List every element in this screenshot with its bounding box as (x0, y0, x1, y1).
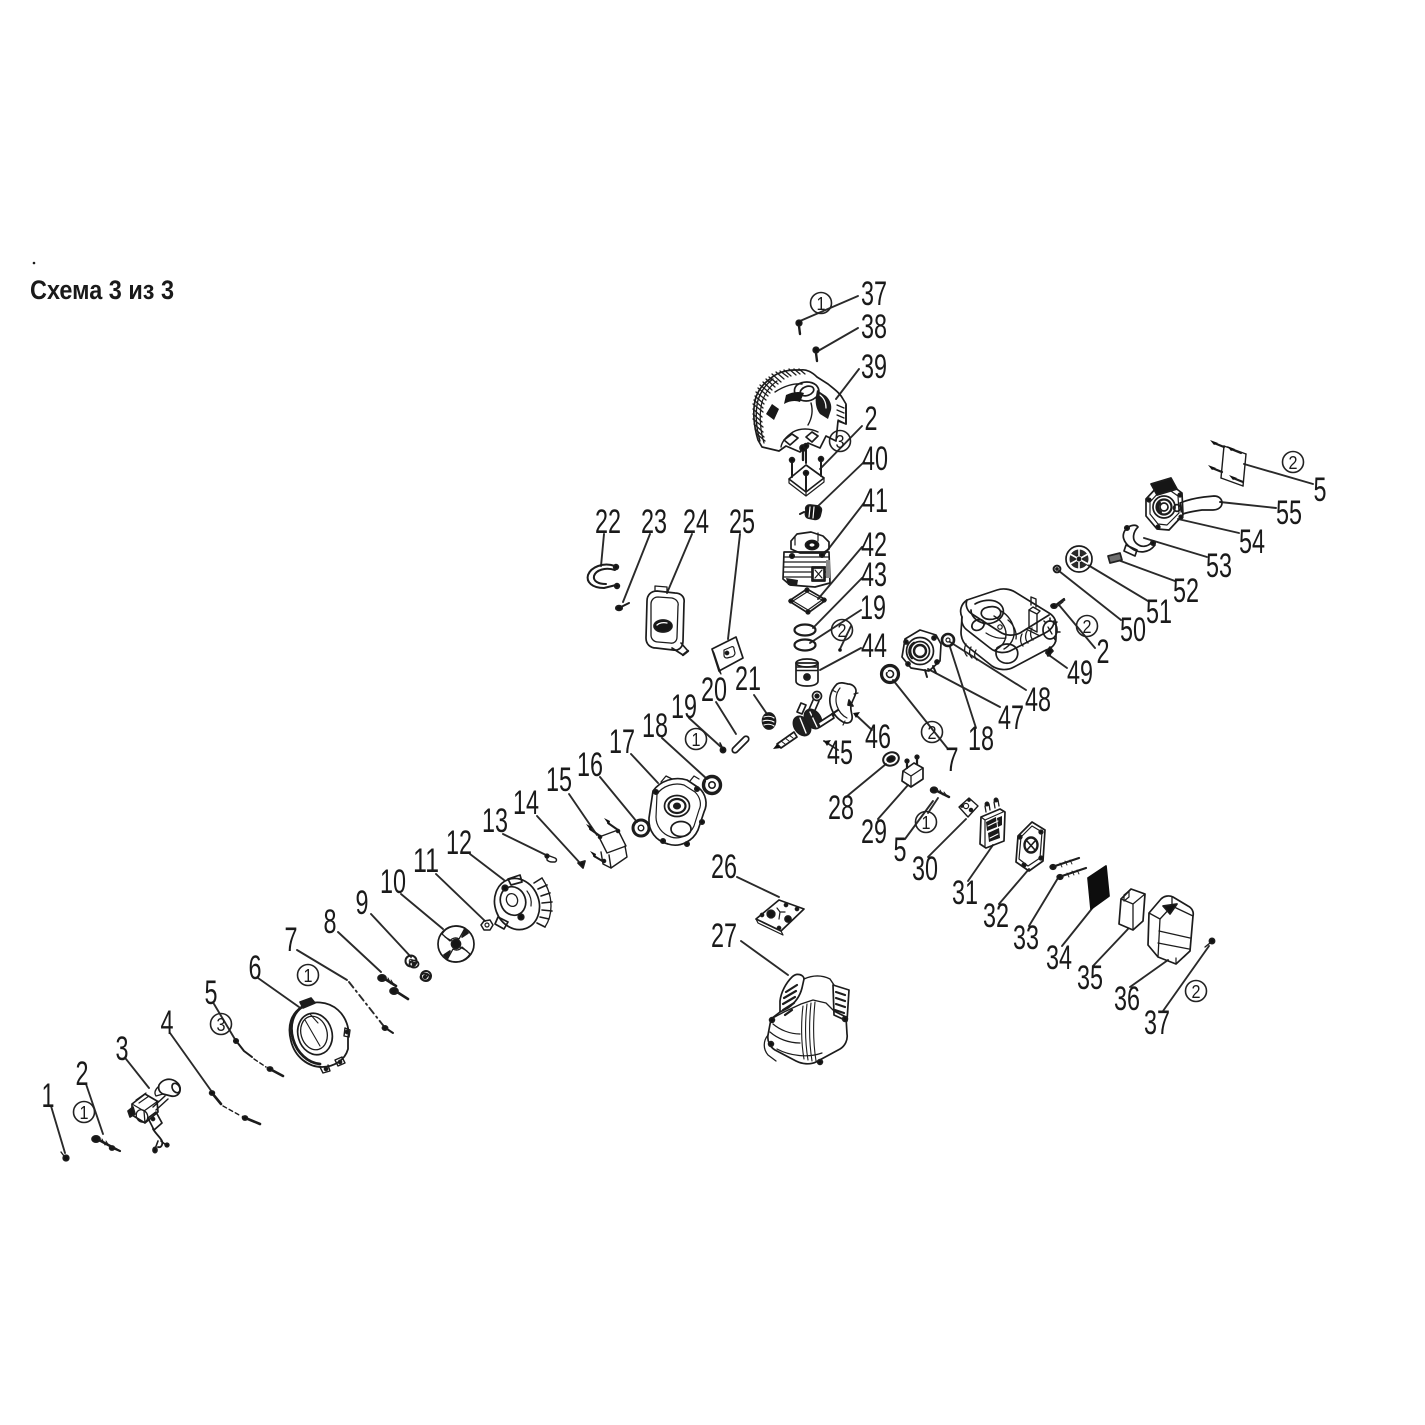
svg-text:2: 2 (1083, 617, 1092, 637)
svg-text:40: 40 (862, 440, 888, 478)
svg-text:50: 50 (1120, 611, 1146, 649)
svg-text:28: 28 (828, 789, 854, 827)
svg-text:9: 9 (356, 884, 369, 922)
svg-text:23: 23 (641, 503, 667, 541)
svg-text:7: 7 (285, 921, 298, 959)
svg-text:1: 1 (304, 966, 313, 986)
svg-text:17: 17 (609, 723, 635, 761)
svg-text:26: 26 (711, 848, 737, 886)
svg-text:47: 47 (998, 699, 1024, 737)
svg-text:4: 4 (161, 1004, 174, 1042)
svg-text:12: 12 (446, 824, 472, 862)
svg-text:51: 51 (1146, 593, 1172, 631)
svg-text:36: 36 (1114, 980, 1140, 1018)
svg-text:32: 32 (983, 897, 1009, 935)
svg-text:1: 1 (80, 1103, 89, 1123)
svg-text:2: 2 (1192, 982, 1201, 1002)
svg-text:19: 19 (671, 688, 697, 726)
svg-text:41: 41 (862, 482, 888, 520)
svg-text:21: 21 (735, 660, 761, 698)
svg-text:1: 1 (42, 1077, 55, 1115)
svg-text:49: 49 (1067, 654, 1093, 692)
svg-text:18: 18 (968, 720, 994, 758)
svg-text:2: 2 (865, 400, 878, 438)
svg-text:1: 1 (692, 730, 701, 750)
svg-text:39: 39 (861, 348, 887, 386)
svg-text:48: 48 (1025, 681, 1051, 719)
svg-text:29: 29 (861, 813, 887, 851)
svg-text:33: 33 (1013, 919, 1039, 957)
svg-text:20: 20 (701, 671, 727, 709)
svg-text:3: 3 (217, 1015, 226, 1035)
svg-text:13: 13 (482, 802, 508, 840)
svg-text:10: 10 (380, 863, 406, 901)
svg-text:14: 14 (513, 784, 539, 822)
svg-text:54: 54 (1239, 523, 1265, 561)
svg-text:44: 44 (861, 627, 887, 665)
svg-text:35: 35 (1077, 959, 1103, 997)
svg-text:1: 1 (922, 813, 931, 833)
svg-text:2: 2 (1289, 453, 1298, 473)
svg-text:1: 1 (817, 294, 826, 314)
svg-text:15: 15 (546, 761, 572, 799)
svg-text:2: 2 (76, 1055, 89, 1093)
svg-text:19: 19 (860, 589, 886, 627)
svg-text:3: 3 (116, 1030, 129, 1068)
svg-text:2: 2 (1097, 633, 1110, 671)
svg-text:7: 7 (946, 741, 959, 779)
svg-text:2: 2 (838, 621, 847, 641)
svg-text:25: 25 (729, 503, 755, 541)
svg-text:53: 53 (1206, 547, 1232, 585)
svg-text:27: 27 (711, 917, 737, 955)
svg-text:18: 18 (642, 707, 668, 745)
svg-text:30: 30 (912, 850, 938, 888)
svg-text:Схема 3 из 3: Схема 3 из 3 (30, 275, 174, 305)
svg-text:11: 11 (413, 842, 439, 880)
svg-text:22: 22 (595, 503, 621, 541)
svg-text:52: 52 (1173, 572, 1199, 610)
svg-text:5: 5 (894, 831, 907, 869)
svg-text:46: 46 (865, 718, 891, 756)
svg-text:2: 2 (928, 723, 937, 743)
svg-text:16: 16 (577, 746, 603, 784)
svg-text:8: 8 (324, 903, 337, 941)
svg-text:37: 37 (1144, 1004, 1170, 1042)
svg-text:31: 31 (952, 874, 978, 912)
svg-text:5: 5 (1314, 471, 1327, 509)
svg-text:45: 45 (827, 734, 853, 772)
svg-text:38: 38 (861, 308, 887, 346)
svg-text:6: 6 (249, 949, 262, 987)
svg-text:55: 55 (1276, 494, 1302, 532)
svg-text:24: 24 (683, 503, 709, 541)
svg-text:34: 34 (1046, 939, 1072, 977)
svg-text:5: 5 (205, 974, 218, 1012)
